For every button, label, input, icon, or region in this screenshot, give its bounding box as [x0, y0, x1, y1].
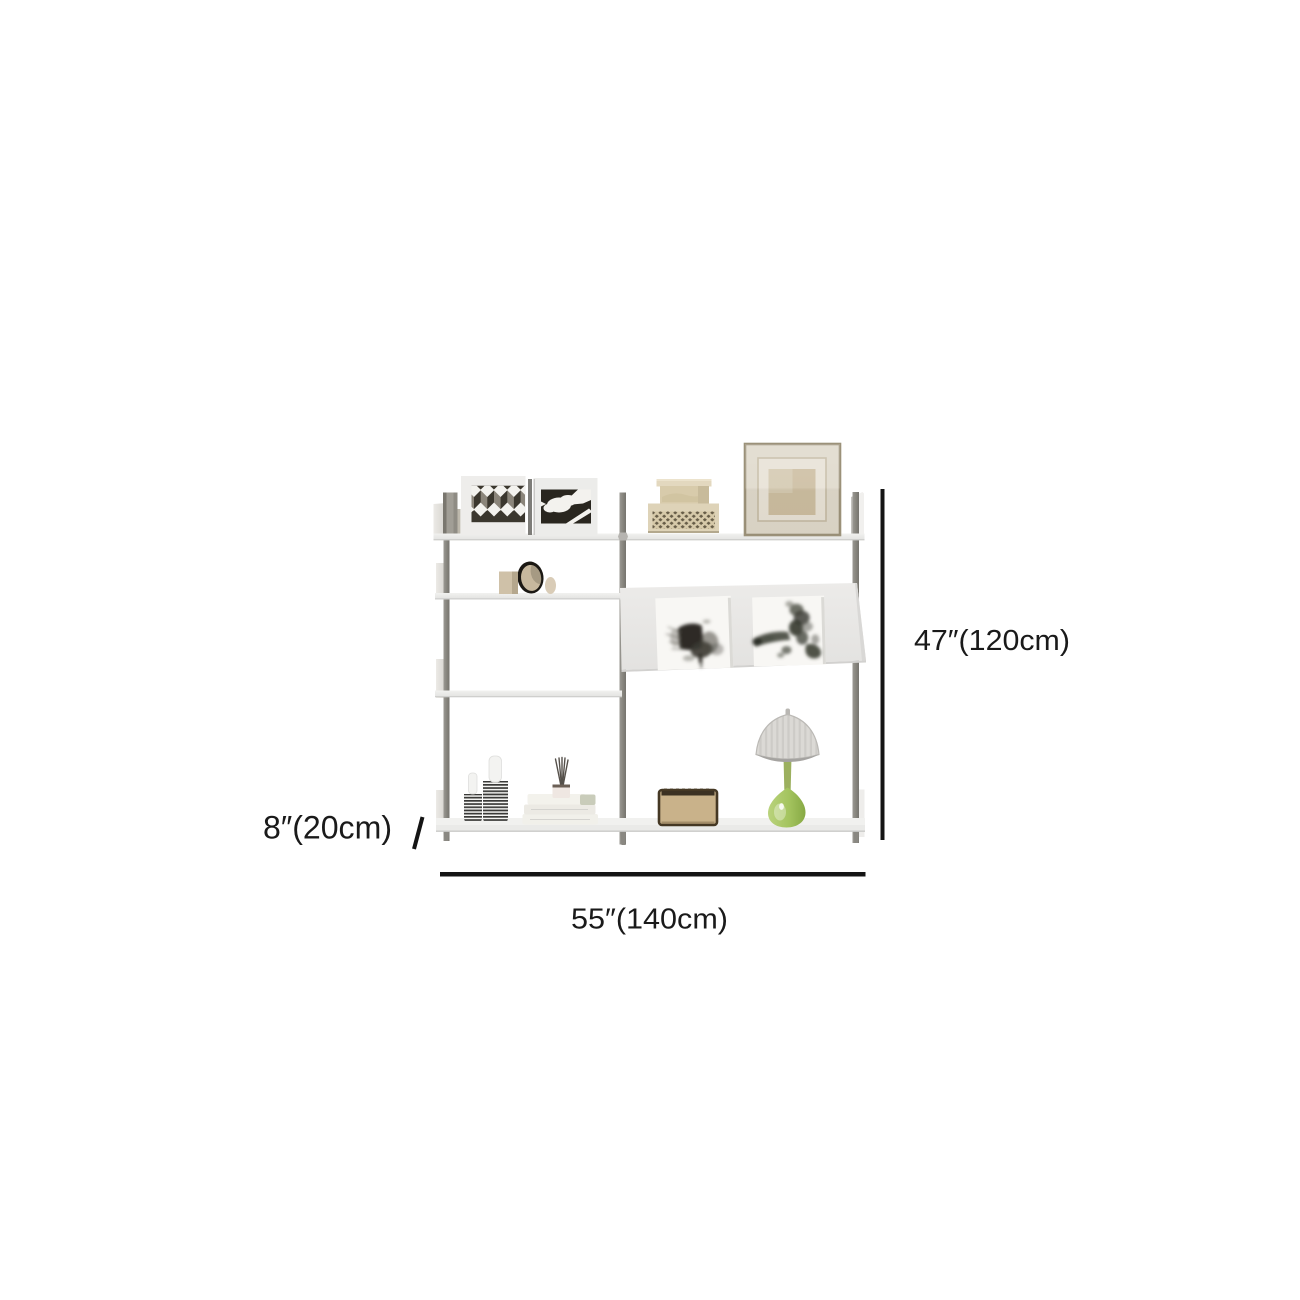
svg-text:47″(120cm): 47″(120cm)	[914, 625, 1070, 657]
svg-text:55″(140cm): 55″(140cm)	[571, 904, 728, 936]
svg-text:8″(20cm): 8″(20cm)	[263, 810, 392, 846]
